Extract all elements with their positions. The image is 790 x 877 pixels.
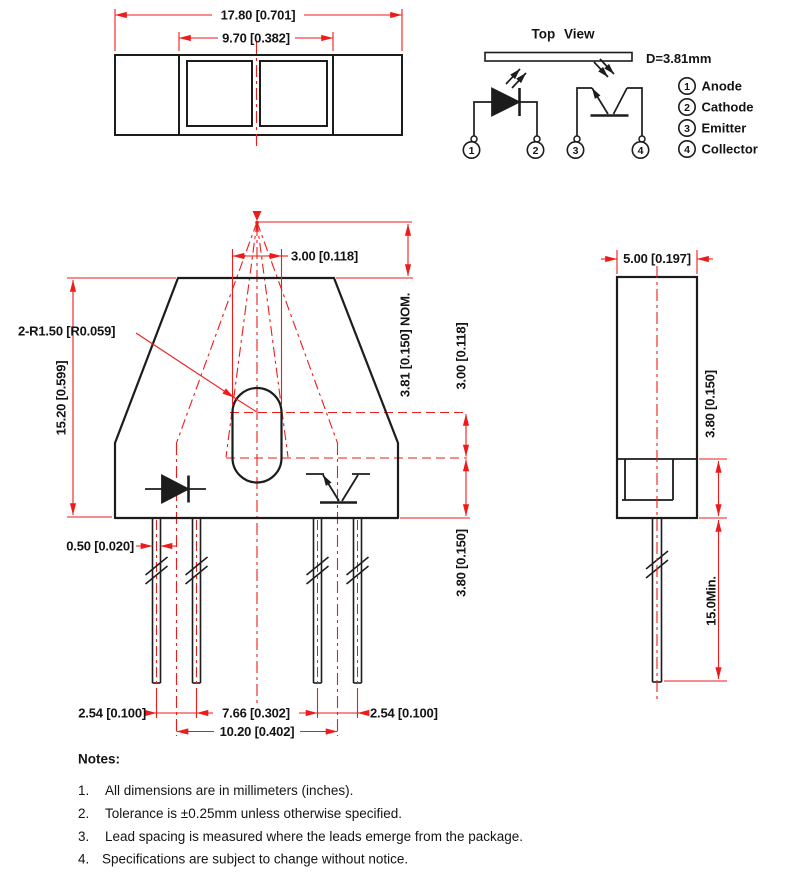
phototransistor-symbol [577,59,642,136]
side-view-dims [601,250,727,703]
schematic-title: Top View [531,27,595,42]
focal-point-arrow-icon [253,211,262,221]
detector-window [260,61,327,126]
note-4-text: Specifications are subject to change wit… [102,852,408,867]
reflector-bar [485,53,632,62]
pin-4-number: 4 [638,145,644,157]
note-2-text: Tolerance is ±0.25mm unless otherwise sp… [105,806,402,821]
dim-lead-length-min-label: 15.0Min. [704,576,719,626]
front-phototransistor-symbol [306,474,370,503]
radius-label: 2-R1.50 [R0.059] [18,324,115,339]
light-cone-line [177,222,258,443]
note-3-text: Lead spacing is measured where the leads… [105,829,523,844]
pin-terminals [463,136,648,158]
radius-leader [136,333,234,398]
note-2-number: 2. [78,806,89,821]
mechanical-drawing-page: 17.80 [0.701] 9.70 [0.382] Top View D=3.… [0,0,790,877]
legend-pin-1-number: 1 [684,81,690,93]
legend-pin-3-number: 3 [684,123,690,135]
dim-side-width-label: 5.00 [0.197] [623,251,691,266]
dim-slot-width-label: 3.00 [0.118] [291,249,358,264]
led-symbol [474,69,537,136]
dim-body-height-label: 15.20 [0.599] [54,361,69,436]
legend-pin-4-number: 4 [684,144,690,156]
notes-title: Notes: [78,752,120,767]
top-package-view [115,55,402,135]
front-view-body [115,278,398,518]
drawing-svg: 17.80 [0.701] 9.70 [0.382] Top View D=3.… [0,0,790,877]
aperture-cone-line [257,222,288,457]
dim-step-to-base-label: 3.80 [0.150] [454,529,469,597]
notes-block: Notes: 1. All dimensions are in millimet… [78,752,523,867]
legend-pin-1-label: Anode [702,79,742,94]
legend-pin-3-label: Emitter [702,121,747,136]
aperture-cone-line [226,222,257,457]
emitter-window [187,61,252,126]
dim-overall-width-label: 17.80 [0.701] [221,8,296,23]
note-1-text: All dimensions are in millimeters (inche… [105,783,353,798]
diode-triangle-icon [162,476,188,503]
pin-1-number: 1 [469,145,475,157]
dim-pitch-left-label: 2.54 [0.100] [78,706,146,721]
note-4-number: 4. [78,852,89,867]
dim-lead-thickness-label: 0.50 [0.020] [66,539,134,554]
dim-base-height-label: 3.80 [0.150] [703,370,718,438]
note-3-number: 3. [78,829,89,844]
dim-window-width-label: 9.70 [0.382] [222,31,290,46]
note-1-number: 1. [78,783,89,798]
emitter-arrow-icon [592,88,608,114]
dim-inner-span-label: 7.66 [0.302] [222,706,290,721]
legend-pin-4-label: Collector [702,142,758,157]
package-outline [115,55,402,135]
pin-legend: 1 2 3 4 Anode Cathode Emitter Collector [679,78,758,157]
pin-2-number: 2 [533,145,539,157]
dim-focal-distance-label: 3.81 [0.150] NOM. [398,293,413,397]
legend-pin-2-label: Cathode [702,100,754,115]
emitter-arrow-icon [323,475,339,501]
legend-pin-2-number: 2 [684,102,690,114]
reflection-distance-label: D=3.81mm [646,51,711,66]
diode-triangle-icon [492,89,519,116]
dim-center-span-label: 10.20 [0.402] [220,724,295,739]
front-led-symbol [145,476,206,503]
dim-pitch-right-label: 2.54 [0.100] [370,706,438,721]
pin-3-number: 3 [573,145,579,157]
dim-slot-to-step-label: 3.00 [0.118] [454,323,469,390]
